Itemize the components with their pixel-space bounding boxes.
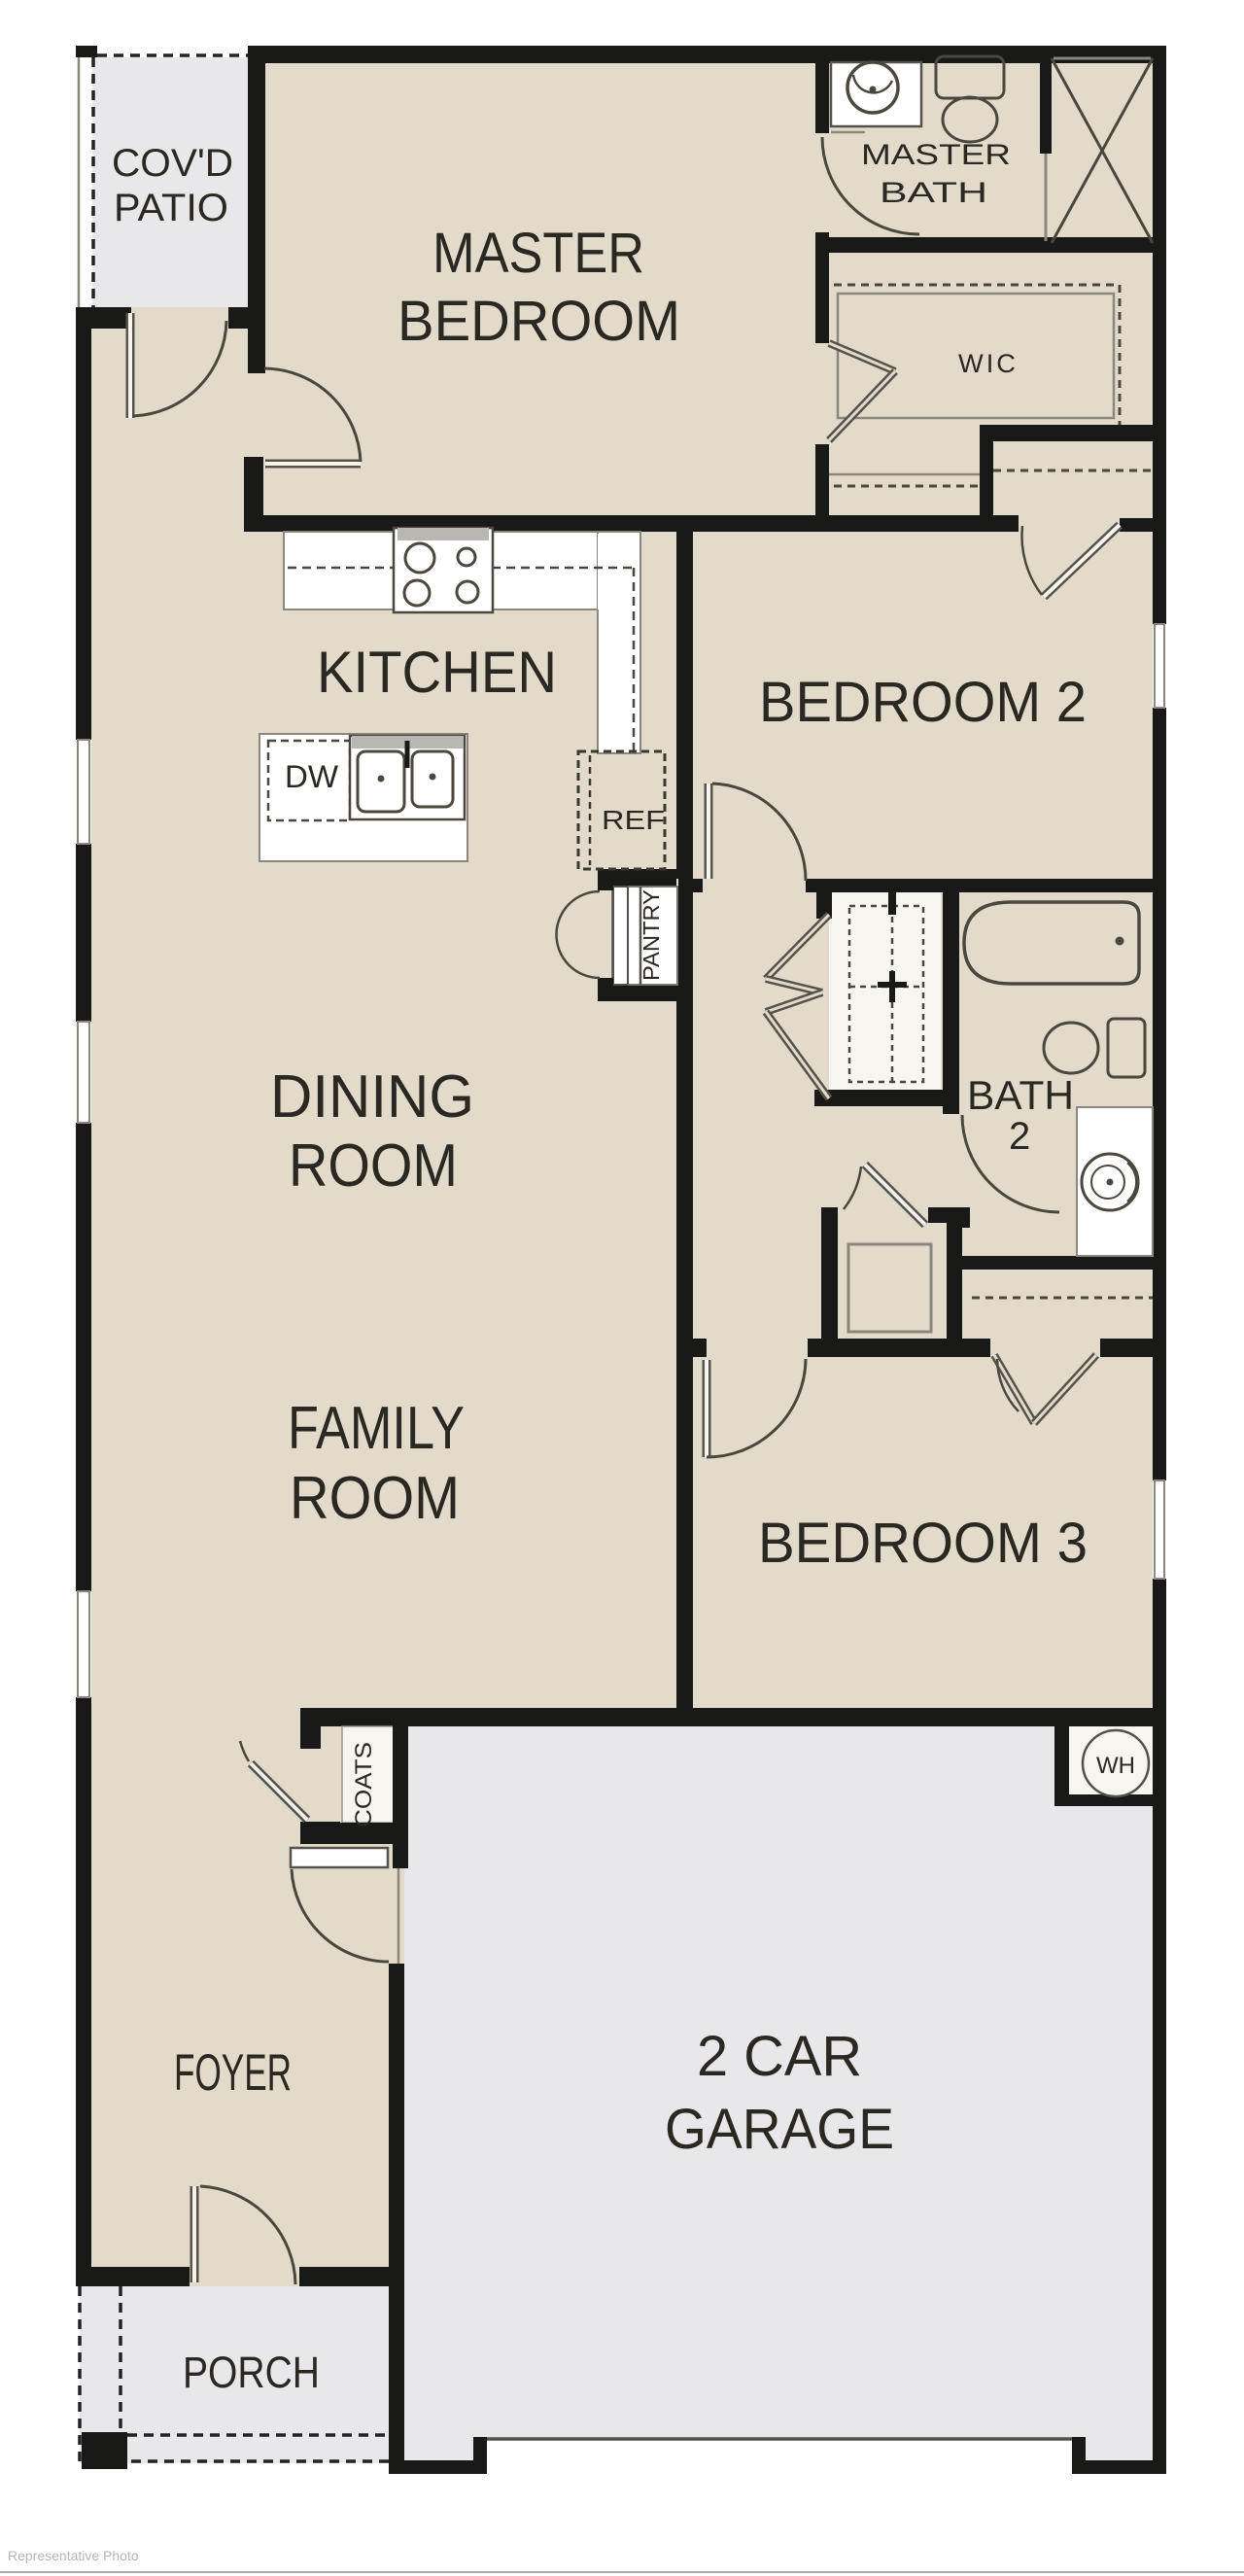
svg-text:2: 2 (1009, 1115, 1030, 1158)
svg-text:KITCHEN: KITCHEN (317, 640, 557, 705)
svg-text:2 CAR: 2 CAR (697, 2025, 862, 2088)
svg-text:FOYER: FOYER (174, 2044, 292, 2102)
svg-text:REF: REF (602, 805, 665, 835)
svg-text:BEDROOM 2: BEDROOM 2 (759, 671, 1087, 734)
svg-text:DINING: DINING (270, 1063, 474, 1131)
svg-text:COV'D: COV'D (112, 142, 233, 185)
svg-text:WH: WH (1096, 1753, 1135, 1779)
svg-text:Representative Photo: Representative Photo (8, 2548, 139, 2563)
svg-text:COATS: COATS (351, 1742, 377, 1828)
svg-text:ROOM: ROOM (289, 1132, 458, 1200)
svg-text:PORCH: PORCH (183, 2348, 320, 2397)
svg-text:BATH: BATH (967, 1072, 1074, 1118)
svg-text:BEDROOM: BEDROOM (397, 290, 680, 353)
svg-text:PATIO: PATIO (114, 187, 228, 229)
svg-text:PANTRY: PANTRY (639, 889, 664, 981)
svg-text:ROOM: ROOM (290, 1465, 460, 1532)
svg-text:DW: DW (285, 759, 339, 794)
svg-text:GARAGE: GARAGE (665, 2098, 894, 2161)
svg-text:FAMILY: FAMILY (288, 1395, 465, 1462)
svg-text:MASTER: MASTER (432, 222, 644, 285)
svg-text:BATH: BATH (880, 177, 987, 209)
svg-text:BEDROOM 3: BEDROOM 3 (758, 1512, 1088, 1575)
svg-text:WIC: WIC (958, 349, 1019, 378)
svg-text:MASTER: MASTER (861, 139, 1011, 171)
